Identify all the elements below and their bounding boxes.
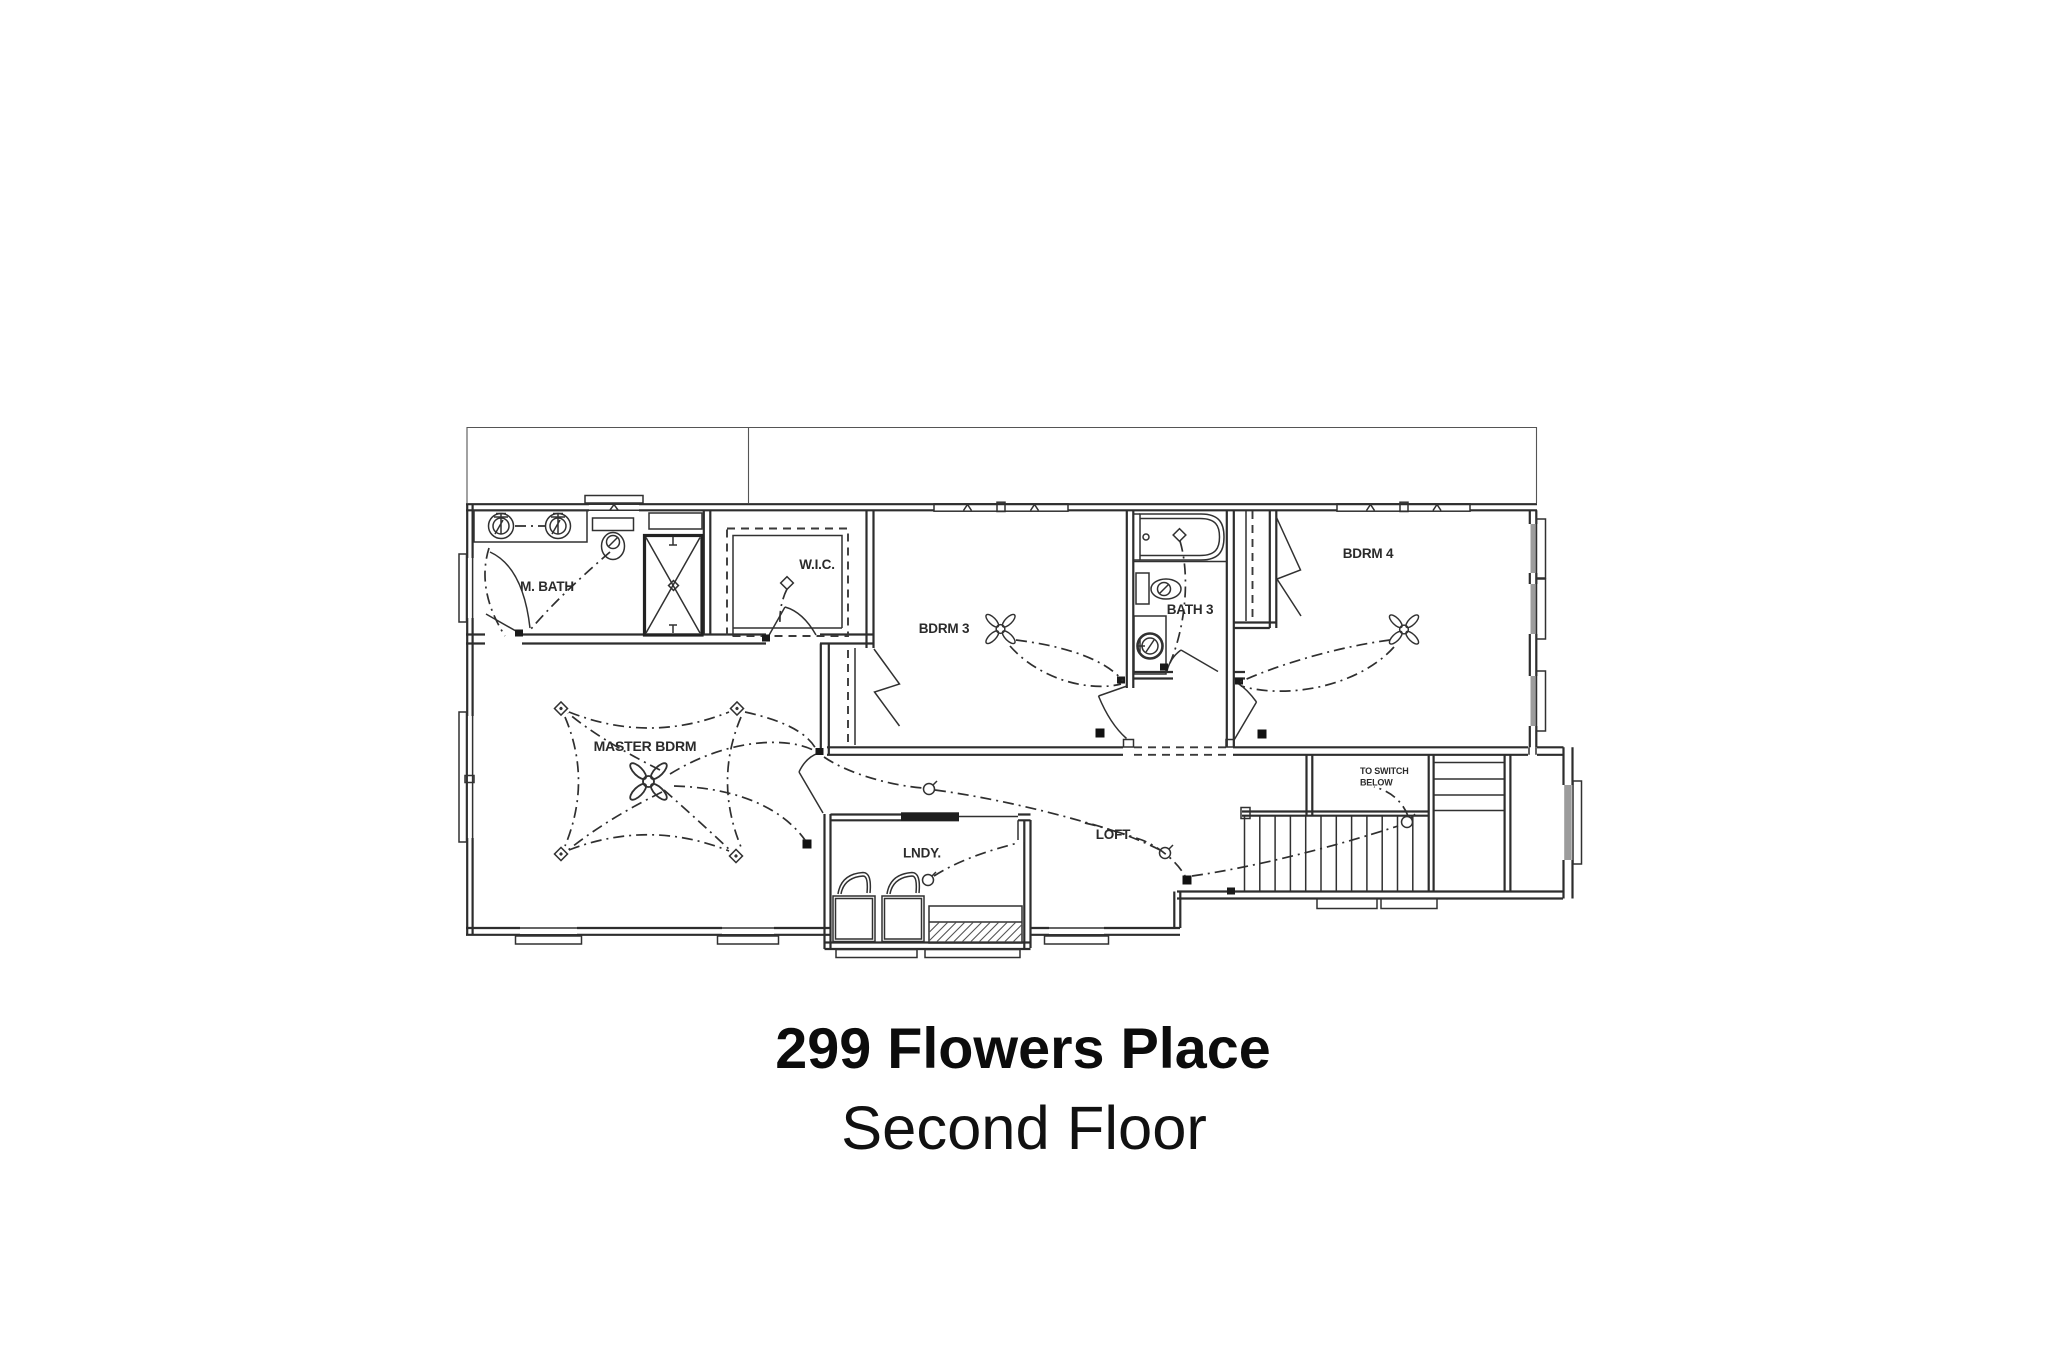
svg-text:LOFT: LOFT xyxy=(1096,827,1131,842)
svg-text:TO SWITCH: TO SWITCH xyxy=(1360,766,1409,776)
svg-text:W.I.C.: W.I.C. xyxy=(799,557,835,572)
svg-text:BDRM 3: BDRM 3 xyxy=(919,621,970,636)
svg-text:Second Floor: Second Floor xyxy=(841,1094,1207,1163)
svg-text:LNDY.: LNDY. xyxy=(903,846,941,861)
svg-text:BELOW: BELOW xyxy=(1360,778,1393,788)
svg-text:M. BATH: M. BATH xyxy=(520,579,574,594)
svg-text:MASTER BDRM: MASTER BDRM xyxy=(594,738,697,754)
svg-text:BDRM 4: BDRM 4 xyxy=(1343,546,1394,561)
svg-text:299 Flowers Place: 299 Flowers Place xyxy=(775,1017,1270,1081)
svg-text:BATH 3: BATH 3 xyxy=(1167,602,1214,617)
